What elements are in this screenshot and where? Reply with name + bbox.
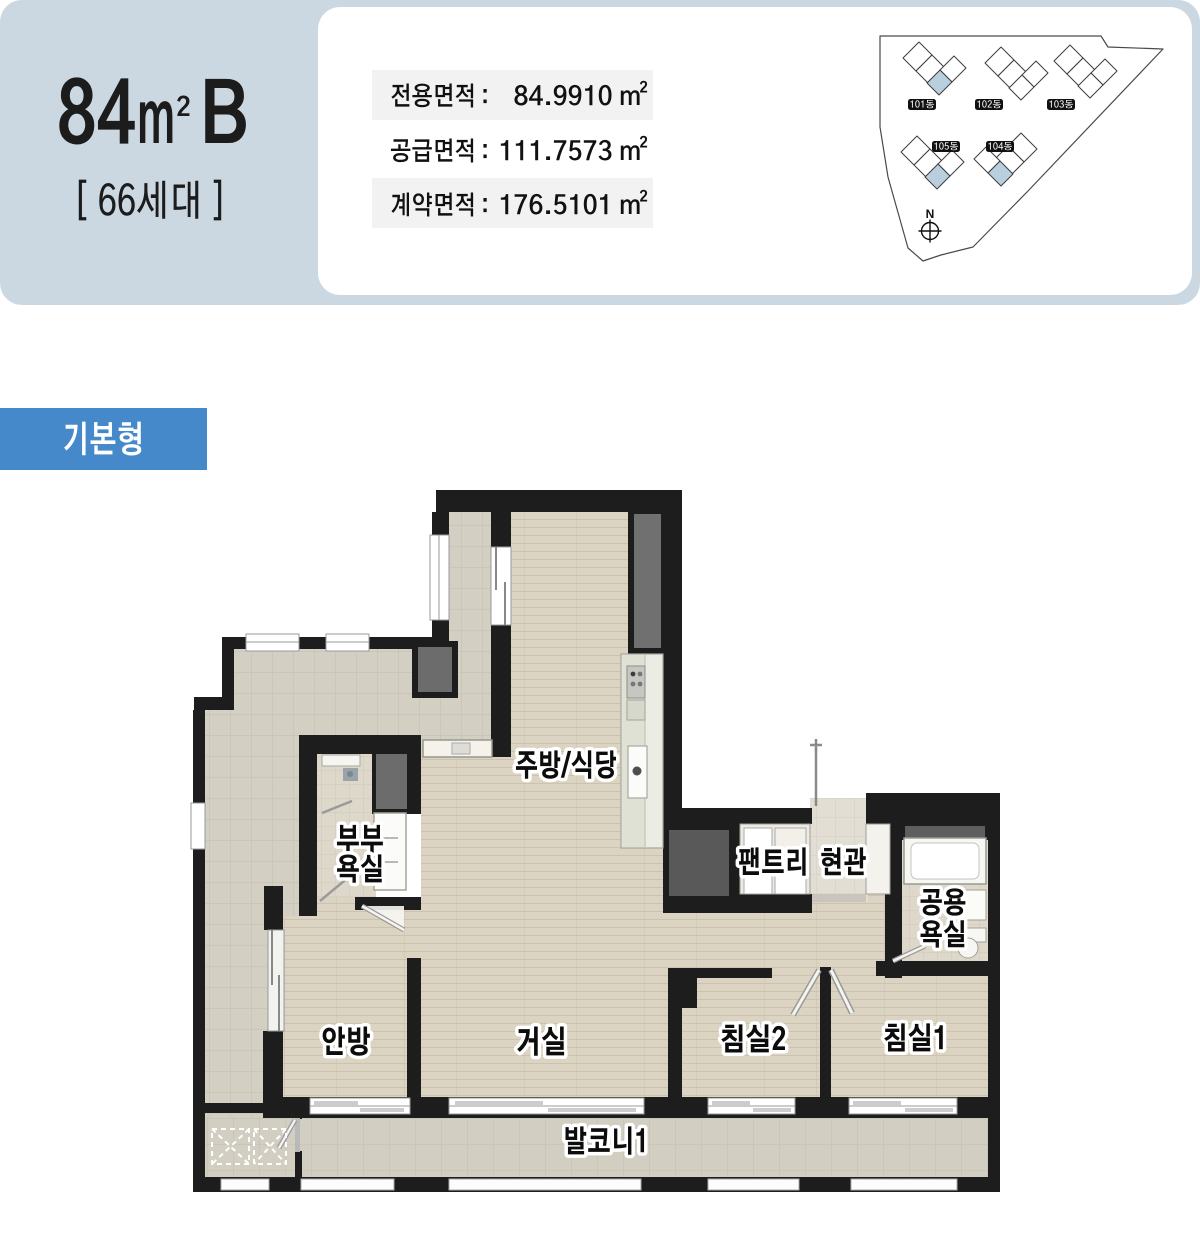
svg-text:N: N xyxy=(926,207,935,221)
